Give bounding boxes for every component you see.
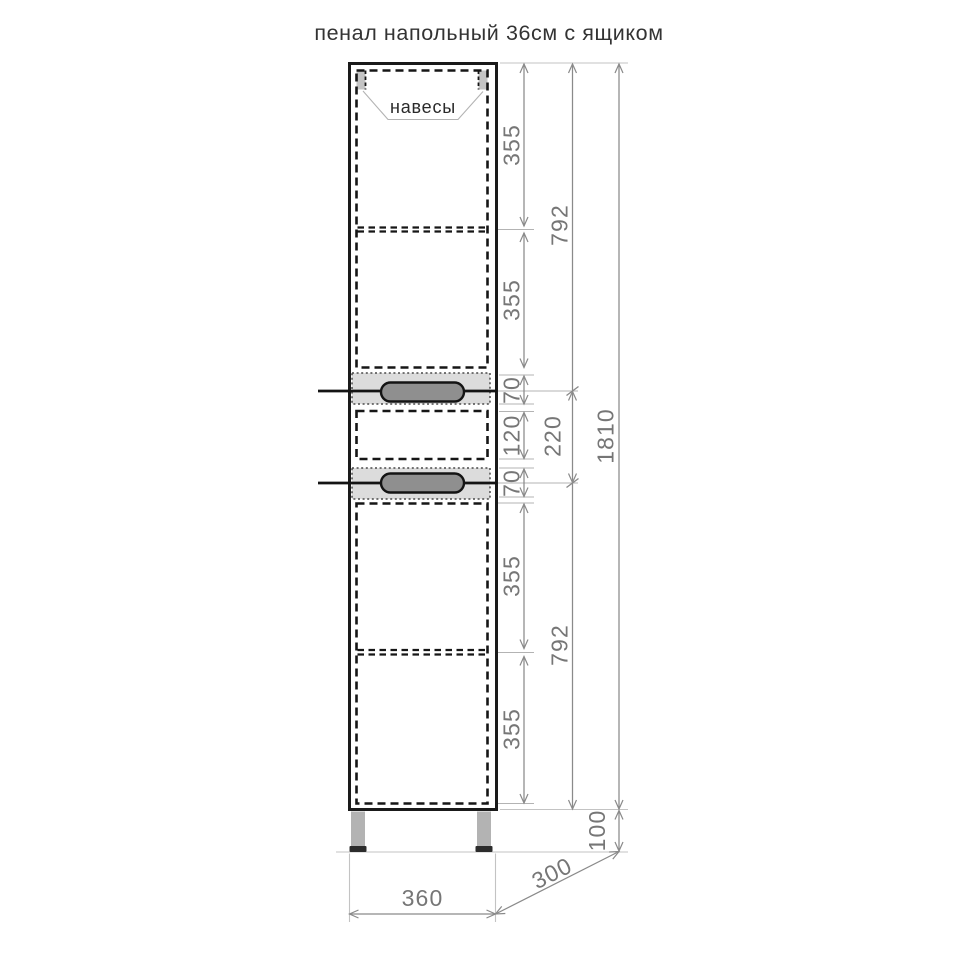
dim-value-body-depth: 300 [528,852,577,894]
dim-value-lower-door-top: 355 [499,555,525,597]
foot-right [476,846,493,852]
hinge-right [479,71,488,90]
dim-value-drawer-module: 220 [540,415,566,457]
dim-value-body-width: 360 [402,885,444,911]
dim-value-legs-height: 100 [584,810,610,852]
cabinet-dimension-drawing: пенал напольный 36см с ящиком [0,0,964,964]
hinge-left [357,71,366,90]
dim-value-drawer-front-top: 70 [499,376,525,404]
drawer-handle-lower [381,474,464,493]
dim-value-upper-door-bottom: 355 [499,279,525,321]
foot-left [350,846,367,852]
dimension-footprint: 360 300 [350,852,620,915]
dim-value-lower-section: 792 [547,624,573,666]
cabinet: навесы [318,64,497,853]
dim-value-drawer-inner: 120 [499,415,525,457]
dim-value-body-height: 1810 [593,408,619,464]
cabinet-outline [350,64,497,810]
furniture-drawing-page: пенал напольный 36см с ящиком [0,0,964,964]
dimension-chain-sections: 792 220 792 [540,64,579,809]
dim-value-upper-section: 792 [547,204,573,246]
leg-right [477,812,491,847]
hinges-callout-label: навесы [390,97,456,117]
drawer-handle-upper [381,383,464,402]
drawing-title: пенал напольный 36см с ящиком [314,21,663,45]
dimension-overall: 1810 100 [584,64,619,851]
dim-value-lower-door-bottom: 355 [499,708,525,750]
leg-left [351,812,365,847]
dim-value-upper-door-top: 355 [499,124,525,166]
dim-value-drawer-front-bottom: 70 [499,469,525,497]
dimension-chain-detail: 355 355 70 120 70 355 355 [499,64,525,803]
